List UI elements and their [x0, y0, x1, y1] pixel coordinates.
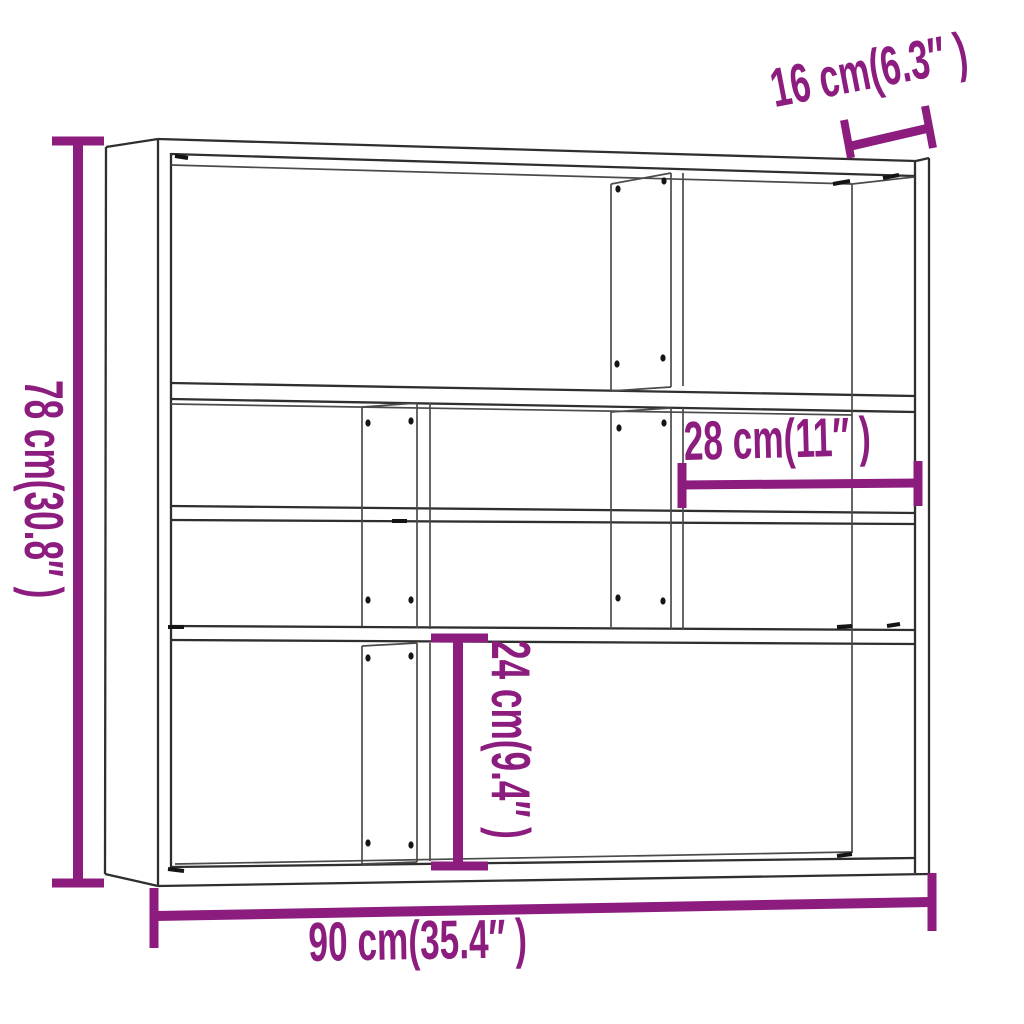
shelf-line-drawing: [0, 0, 1024, 1024]
dimension-label-width: 90 cm(35.4″ ): [308, 911, 527, 970]
dimension-line-depth: [844, 106, 933, 158]
dimension-label-compartment-height: 24 cm(9.4″ ): [483, 640, 538, 839]
dimension-label-height: 78 cm(30.8″ ): [16, 380, 71, 598]
shelf-interior-lines: [171, 165, 914, 864]
dimension-label-compartment-width: 28 cm(11″ ): [683, 409, 871, 469]
diagram-canvas: 78 cm(30.8″ ) 16 cm(6.3″ ) 28 cm(11″ ) 2…: [0, 0, 1024, 1024]
